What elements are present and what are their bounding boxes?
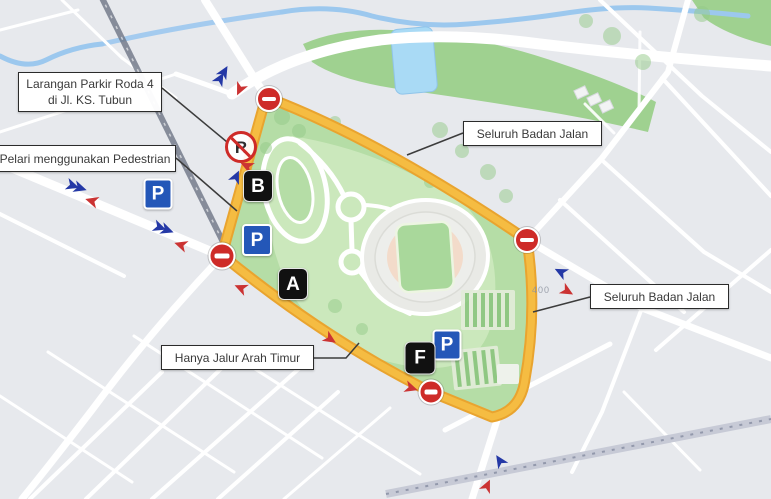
no-entry-bar — [424, 390, 437, 395]
red-traffic-arrow-icon — [322, 331, 339, 348]
blue-traffic-arrow-icon — [212, 63, 233, 87]
red-traffic-arrow-icon — [172, 237, 188, 252]
label-seluruh-badan-jalan-kanan: Seluruh Badan Jalan — [590, 284, 729, 309]
label-larangan-parkir: Larangan Parkir Roda 4di Jl. KS. Tubun — [18, 72, 162, 112]
no-entry-bar — [262, 97, 276, 102]
label-pelari-pedestrian-connector — [176, 158, 237, 211]
no-entry-sign-icon — [514, 227, 540, 253]
callout-text-line: Seluruh Badan Jalan — [604, 289, 715, 305]
red-traffic-arrow-icon — [559, 283, 576, 300]
parking-sign-icon: P — [144, 179, 173, 210]
red-traffic-arrow-icon — [84, 193, 100, 208]
blue-traffic-arrow-icon — [152, 220, 176, 238]
route-marker-a: A — [278, 268, 308, 300]
blue-traffic-arrow-icon — [552, 263, 569, 280]
label-seluruh-badan-jalan-kanan-connector — [533, 297, 590, 312]
no-entry-bar — [215, 254, 229, 259]
map-scale-text: 400 — [532, 285, 550, 295]
route-marker-b: B — [243, 170, 273, 202]
no-entry-sign-icon — [209, 243, 236, 270]
no-entry-sign-icon — [256, 86, 282, 112]
label-seluruh-badan-jalan-atas-connector — [407, 133, 463, 155]
label-hanya-jalur-arah-timur-connector — [314, 343, 359, 358]
red-traffic-arrow-icon — [232, 81, 248, 98]
blue-traffic-arrow-icon — [65, 178, 89, 196]
callout-text-line: Seluruh Badan Jalan — [477, 126, 588, 142]
callout-text-line: Larangan Parkir Roda 4 — [26, 76, 153, 92]
label-hanya-jalur-arah-timur: Hanya Jalur Arah Timur — [161, 345, 314, 370]
callout-text-line: Pelari menggunakan Pedestrian — [0, 151, 170, 167]
no-parking-sign-icon: R — [225, 131, 257, 163]
label-larangan-parkir-connector — [162, 88, 227, 142]
blue-traffic-arrow-icon — [228, 168, 244, 185]
red-traffic-arrow-icon — [479, 477, 495, 494]
callout-text-line: Hanya Jalur Arah Timur — [175, 350, 300, 366]
label-seluruh-badan-jalan-atas: Seluruh Badan Jalan — [463, 121, 602, 146]
callout-text-line: di Jl. KS. Tubun — [48, 92, 132, 108]
no-entry-bar — [520, 238, 534, 243]
route-marker-f: F — [405, 342, 436, 375]
no-entry-sign-icon — [419, 380, 444, 405]
red-traffic-arrow-icon — [403, 380, 419, 395]
label-pelari-pedestrian: Pelari menggunakan Pedestrian — [0, 145, 176, 172]
parking-sign-icon: P — [433, 330, 462, 361]
map-canvas[interactable]: RPPPBAFLarangan Parkir Roda 4di Jl. KS. … — [0, 0, 771, 499]
red-traffic-arrow-icon — [232, 280, 249, 296]
blue-traffic-arrow-icon — [491, 452, 508, 469]
parking-sign-icon: P — [242, 224, 272, 256]
